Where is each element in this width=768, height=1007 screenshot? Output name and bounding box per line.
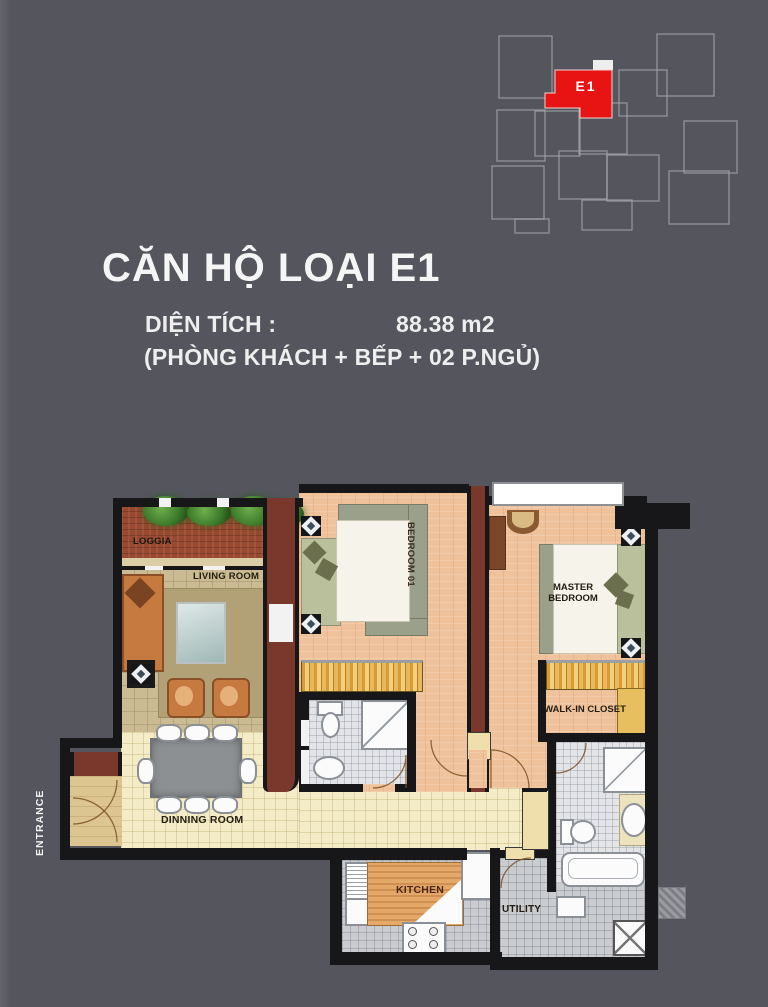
room-label-loggia: LOGGIA [133,536,172,547]
wall-segment [490,957,658,970]
bed-mattress [336,520,410,622]
door-gap [203,566,225,570]
bathtub-icon [561,852,645,887]
wall-segment [121,566,263,570]
wall-segment [645,505,658,970]
keyplan-balcony-tab [593,60,613,70]
door-gap [145,566,163,570]
accent-wall [70,752,122,776]
room-label-utility: UTILITY [502,904,541,915]
room-label-kitchen: KITCHEN [396,884,444,896]
room-label-entrance: ENTRANCE [34,786,46,856]
wall-niche [269,604,293,642]
ac-unit-icon [621,526,641,546]
room-label-walk-in-closet: WALK-IN CLOSET [543,704,627,715]
door-opening [469,750,487,788]
shower-icon [603,747,649,793]
ac-unit-icon [621,638,641,658]
wall-segment [60,848,342,860]
room-label-living-room: LIVING ROOM [193,571,259,582]
dish-rack [345,862,369,900]
shower-icon [361,700,411,750]
floor-plan: LOGGIA LIVING ROOM BEDROOM 01 MASTER BED… [55,470,705,995]
wardrobe [301,660,423,692]
burner [408,927,417,936]
burner [429,927,438,936]
dining-chair [212,796,238,814]
ac-ledge [658,887,686,919]
wall-segment [538,660,546,742]
window-gap [159,498,171,507]
wall-segment [299,484,469,493]
round-table-top [512,512,534,528]
shaft-box [613,920,647,956]
dining-chair [156,724,182,742]
window-gap [217,498,229,507]
wall-segment [113,498,122,744]
accent-wall [263,498,299,792]
dining-chair [156,796,182,814]
kitchen-sink-icon [345,898,369,926]
wall-segment [522,788,547,792]
wall-segment [330,848,342,965]
wall-segment [395,784,416,792]
armchair-cushion [220,686,238,706]
wall-segment [615,503,690,529]
sink-icon [313,756,345,780]
room-label-bedroom-01: BEDROOM 01 [405,522,416,587]
wall-segment [60,738,70,860]
wall-segment [299,784,363,792]
dining-chair [184,724,210,742]
armchair-cushion [175,686,193,706]
bathtub-inner [568,858,638,879]
area-label: DIỆN TÍCH : [145,311,276,338]
dining-chair [212,724,238,742]
ac-unit-icon [301,614,321,634]
wall-segment [330,952,502,965]
wall-segment [342,848,467,860]
composition-line: (PHÒNG KHÁCH + BẾP + 02 P.NGỦ) [144,344,540,371]
balcony-strip [492,482,624,506]
dining-chair [239,758,257,784]
ac-unit-icon [301,516,321,536]
floor-entrance [70,776,122,846]
sink-icon [621,803,647,837]
floor-corridor [299,788,522,850]
armchair [212,678,250,718]
bath-shelf [301,720,309,746]
wall-segment [490,848,500,965]
wall-segment [407,692,416,792]
dining-table [150,738,242,798]
dresser [489,516,506,570]
bath-shelf [301,750,309,784]
brochure-page: E1 CĂN HỘ LOẠI E1 DIỆN TÍCH : 88.38 m2 (… [0,0,768,1007]
burner [408,940,417,949]
room-label-master-bedroom: MASTER BEDROOM [533,582,613,605]
wall-segment [299,692,416,700]
dining-chair [184,796,210,814]
page-title: CĂN HỘ LOẠI E1 [102,246,440,291]
utility-sink-icon [556,896,586,918]
keyplan-unit-label: E1 [565,78,607,94]
room-label-dinning-room: DINNING ROOM [161,814,243,826]
toilet-icon [321,712,340,738]
round-table [507,510,539,534]
closet-wardrobe [546,660,647,690]
coffee-table [176,602,226,664]
burner [429,940,438,949]
toilet-icon [570,820,596,844]
wall-segment [538,733,658,742]
door-jamb [522,790,549,850]
dining-chair [137,758,155,784]
ac-unit-icon [131,664,151,684]
building-keyplan [487,18,763,238]
stove-icon [402,922,446,955]
area-value: 88.38 m2 [396,311,495,338]
armchair [167,678,205,718]
